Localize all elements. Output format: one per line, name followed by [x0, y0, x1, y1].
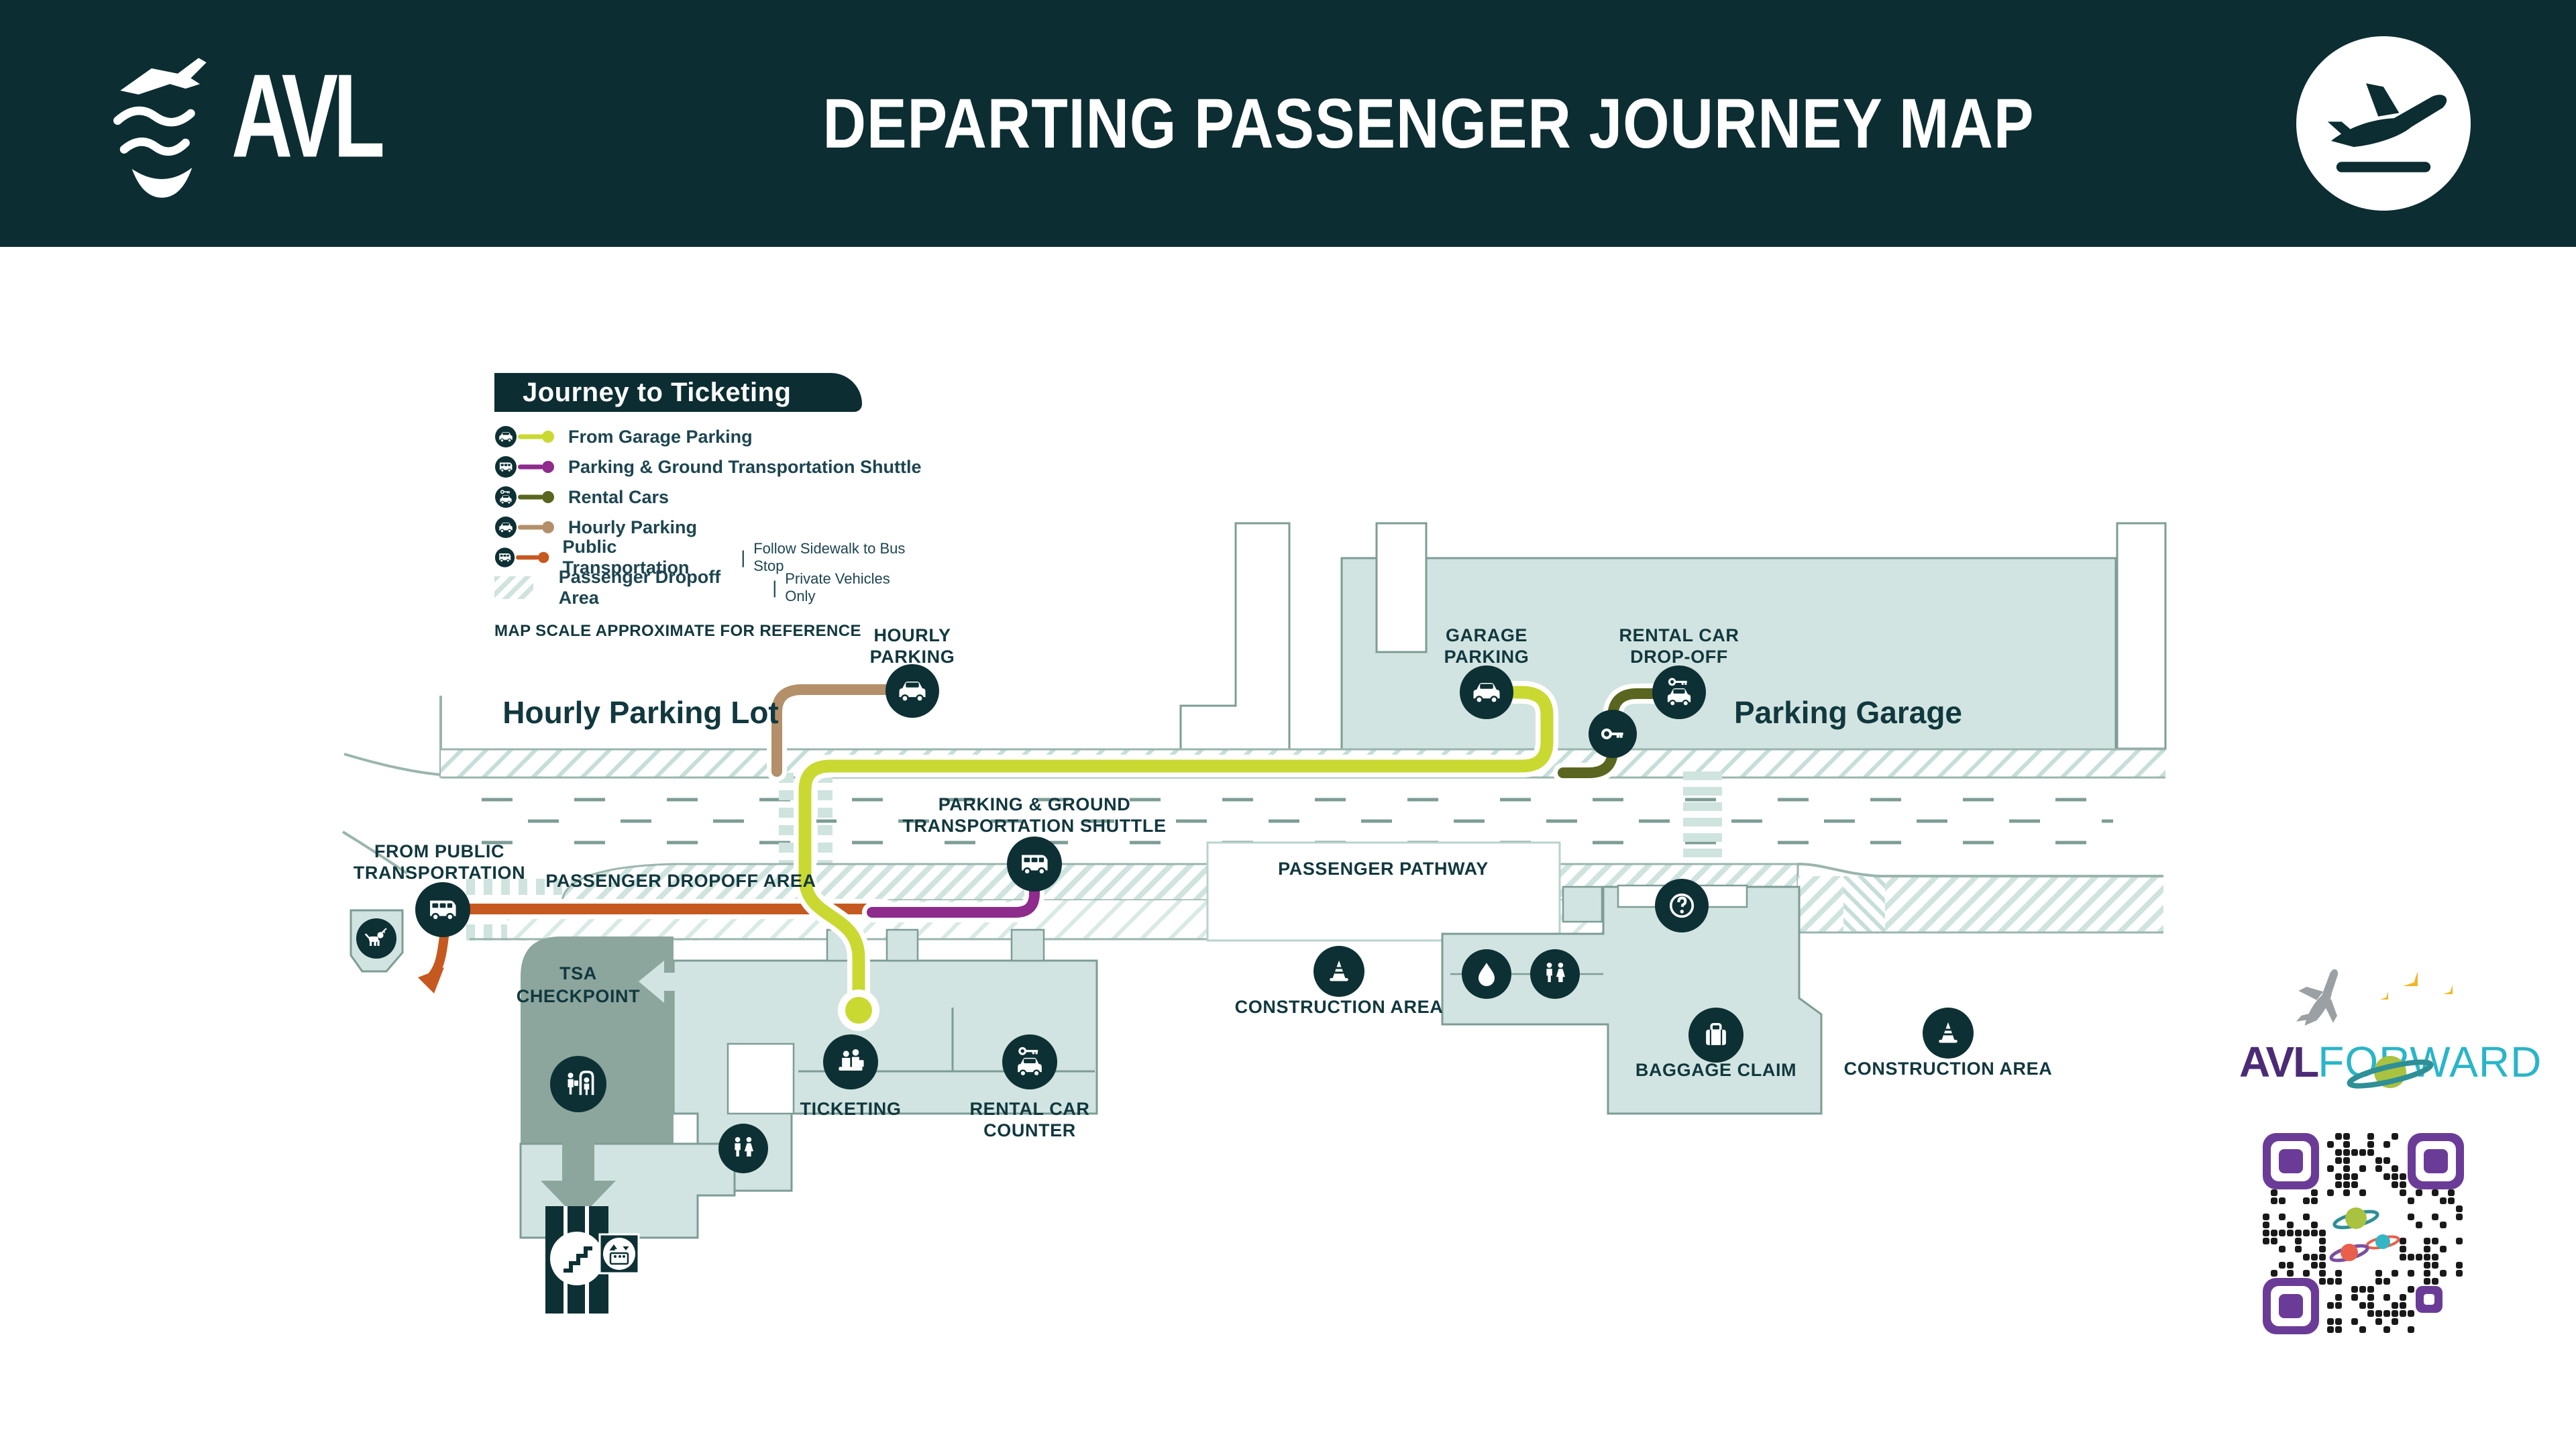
key-junction-icon [1589, 710, 1637, 758]
legend: Journey to Ticketing From Garage Parking… [494, 373, 924, 641]
tsa-checkpoint-label: TSA [559, 963, 597, 983]
terminal-tab [1012, 930, 1044, 961]
rental-car-counter-icon [1002, 1034, 1057, 1089]
building-annex [1563, 887, 1602, 922]
legend-label: Parking & Ground Transportation Shuttle [568, 457, 922, 478]
lane-markings [482, 800, 2113, 843]
shuttle-icon [494, 455, 561, 479]
passenger-pathway-label: PASSENGER PATHWAY [1278, 859, 1489, 879]
garage-ramp-structure [1377, 523, 1426, 652]
public-transportation-icon [415, 882, 470, 937]
sparkle-icon [2372, 983, 2388, 1000]
avl-forward-logo: AVLFORWARD [2239, 985, 2494, 1099]
shuttle-label-2: TRANSPORTATION SHUTTLE [902, 816, 1166, 836]
tsa-screening-icon [550, 1056, 606, 1112]
legend-item-rental-cars: Rental Cars [494, 486, 924, 508]
construction-area-right-label: CONSTRUCTION AREA [1844, 1059, 2053, 1079]
garage-parking-label: GARAGE [1446, 625, 1527, 645]
legend-item-passenger-dropoff: Passenger Dropoff Area | Private Vehicle… [494, 576, 924, 599]
construction-area-left-label: CONSTRUCTION AREA [1235, 997, 1444, 1017]
car-icon [494, 515, 561, 539]
dropoff-hatch-swatch [494, 576, 533, 599]
legend-label: Hourly Parking [568, 517, 697, 538]
header-bar: AVL DEPARTING PASSENGER JOURNEY MAP [0, 0, 2576, 247]
tsa-checkpoint-area [521, 936, 674, 1144]
mountain-ridge-icon [117, 111, 191, 122]
legend-item-hourly-parking: Hourly Parking [494, 516, 924, 539]
shuttle-stop-icon [1007, 837, 1062, 892]
water-fountain-icon [1462, 949, 1511, 999]
ticketing-icon [823, 1034, 878, 1089]
hourly-parking-label-2: PARKING [870, 647, 955, 667]
legend-item-garage-parking: From Garage Parking [494, 425, 924, 448]
legend-separator: | [741, 547, 745, 568]
restroom-baggage-icon [1530, 949, 1580, 999]
legend-sublabel: Private Vehicles Only [785, 570, 924, 605]
legend-title: Journey to Ticketing [523, 378, 791, 408]
rental-car-counter-label: RENTAL CAR [970, 1099, 1090, 1119]
garage-parking-label-2: PARKING [1444, 647, 1529, 667]
basket-shape [132, 168, 193, 198]
plane-takeoff-icon [2296, 36, 2471, 211]
construction-cone-icon-left [1313, 946, 1364, 997]
band-border [1798, 864, 2163, 876]
legend-item-shuttle: Parking & Ground Transportation Shuttle [494, 455, 924, 478]
brand-avl: AVL [2239, 1038, 2318, 1086]
plane-icon [120, 58, 207, 95]
rental-car-icon [494, 485, 561, 509]
passenger-pathway-box [1207, 843, 1560, 941]
qr-code [2254, 1124, 2473, 1343]
baggage-claim-icon [1688, 1008, 1743, 1063]
hourly-parking-icon [885, 664, 939, 718]
legend-label: Passenger Dropoff Area [559, 567, 764, 608]
avl-logo: AVL [101, 25, 417, 207]
rental-car-dropoff-label: RENTAL CAR [1619, 625, 1739, 645]
route-terminus-dot [845, 997, 872, 1024]
rental-car-dropoff-label-2: DROP-OFF [1630, 647, 1728, 667]
restroom-icon [718, 1124, 768, 1173]
map-scale-note: MAP SCALE APPROXIMATE FOR REFERENCE [494, 622, 924, 641]
tsa-checkpoint-label-2: CHECKPOINT [517, 986, 641, 1006]
page-title: DEPARTING PASSENGER JOURNEY MAP [835, 0, 2022, 247]
legend-title-bar: Journey to Ticketing [494, 373, 862, 412]
rental-car-counter-label-2: COUNTER [983, 1120, 1076, 1140]
from-public-transportation-label-2: TRANSPORTATION [354, 863, 525, 883]
info-icon [1655, 879, 1709, 932]
dense-hatch-patch [1843, 876, 1885, 932]
outlined-building [2117, 523, 2165, 749]
pet-relief-icon [356, 918, 396, 959]
road-edge-curve [344, 754, 442, 775]
logo-wordmark: AVL [231, 57, 380, 176]
car-icon [494, 425, 561, 449]
elevator [600, 1234, 639, 1273]
legend-item-public-transportation: Public Transportation | Follow Sidewalk … [494, 546, 924, 569]
baggage-claim-label: BAGGAGE CLAIM [1635, 1060, 1796, 1080]
ticketing-label: TICKETING [800, 1099, 902, 1119]
terminal-tab [887, 930, 918, 961]
from-public-transportation-label: FROM PUBLIC [374, 841, 504, 861]
shuttle-label: PARKING & GROUND [938, 794, 1131, 814]
passenger-dropoff-label: PASSENGER DROPOFF AREA [545, 871, 816, 891]
mountain-ridge-icon [124, 142, 186, 151]
avl-logo-emblem-icon [101, 25, 225, 207]
legend-separator: | [772, 578, 777, 598]
sparkle-icon [2388, 957, 2418, 986]
legend-label: Rental Cars [568, 487, 669, 508]
hourly-parking-lot-label: Hourly Parking Lot [502, 695, 778, 730]
parking-garage-label: Parking Garage [1734, 695, 1962, 730]
garage-parking-icon [1460, 665, 1513, 719]
bus-icon [494, 545, 555, 570]
sparkle-icon [2434, 975, 2453, 994]
construction-cone-icon-right [1923, 1008, 1974, 1059]
legend-label: From Garage Parking [568, 427, 753, 447]
terminal-cutout [728, 1044, 794, 1114]
departures-badge [2296, 36, 2471, 211]
rental-car-dropoff-icon [1652, 665, 1706, 719]
saturn-icon [2333, 1051, 2447, 1097]
outlined-building [1181, 523, 1289, 749]
